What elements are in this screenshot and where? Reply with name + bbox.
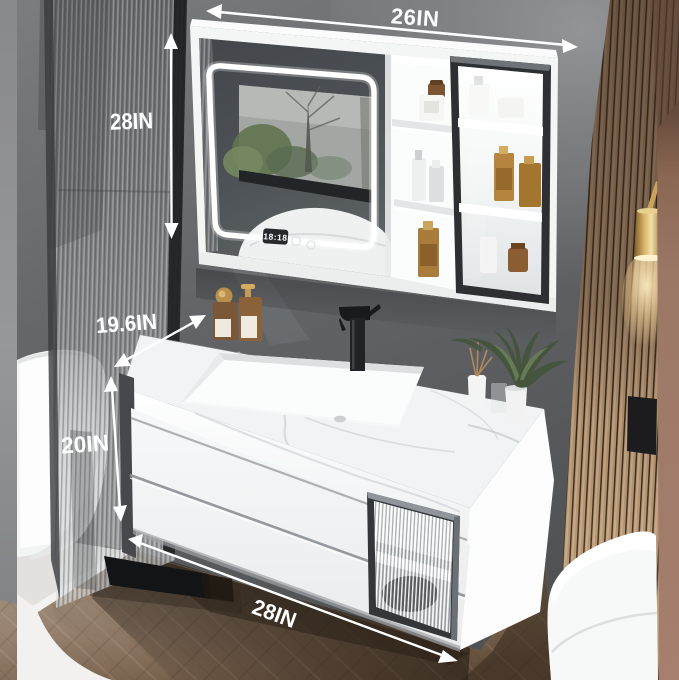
svg-text:28IN: 28IN [110,107,154,134]
svg-text:18:18: 18:18 [263,231,288,243]
svg-text:26IN: 26IN [390,3,440,31]
svg-text:19.6IN: 19.6IN [95,309,158,338]
svg-text:20IN: 20IN [60,429,110,458]
